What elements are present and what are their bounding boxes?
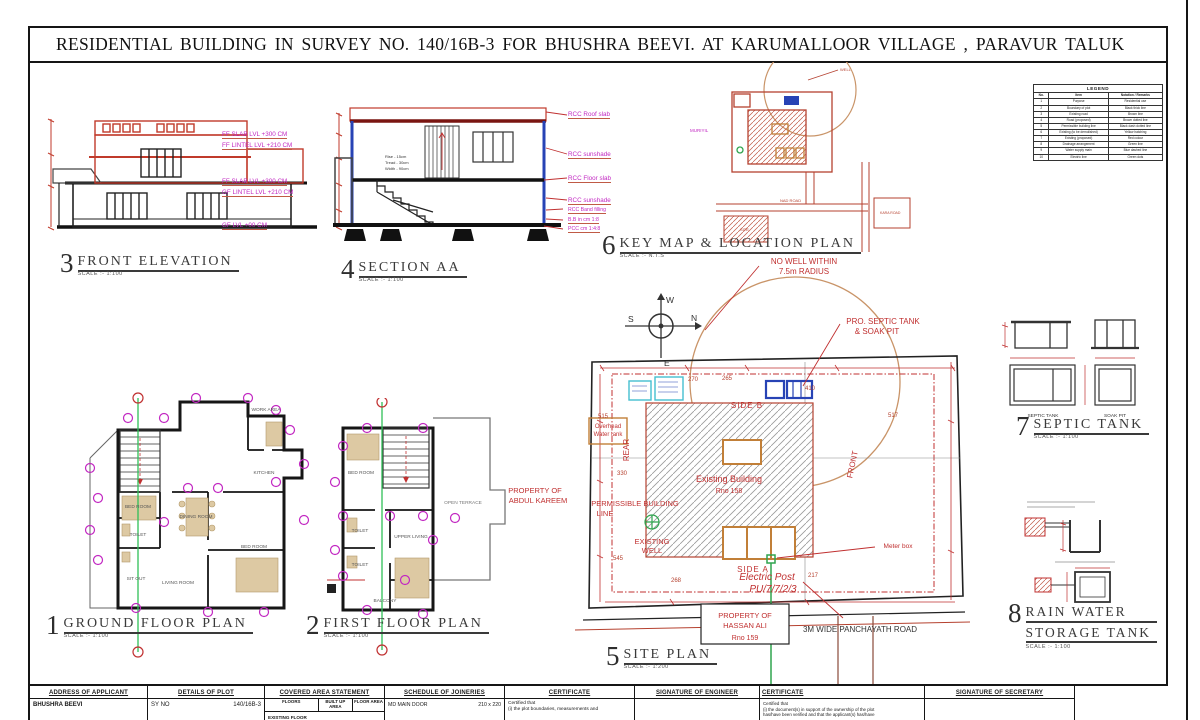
svg-text:WORK AREA: WORK AREA: [251, 407, 281, 413]
well-symbol: [645, 515, 659, 529]
parapet-vents: [103, 124, 194, 132]
title-block-plot: DETAILS OF PLOT SY NO 140/16B-3: [148, 686, 265, 720]
title-block-certificate-2: CERTIFICATE Certified that (i) the docum…: [760, 686, 925, 720]
rain-water-drawing: [1015, 490, 1180, 605]
legend-rows: 1PurposeResidential use2Boundary of plot…: [1034, 99, 1163, 160]
ground-floor-title: GROUND FLOOR PLAN: [64, 614, 253, 634]
legend-row: 10Electric lineGreen dots: [1034, 154, 1163, 160]
site-plan-drawing: NO WELL WITHIN 7.5m RADIUS PRO. SEPTIC T…: [505, 250, 983, 690]
overhead-tank-label2: Water tank: [594, 432, 624, 438]
legend-cell: Electric line: [1049, 154, 1108, 160]
key-map-drawing: WELL NAD ROAD SITE KARA ROAD MURIYIL: [688, 62, 913, 254]
title-block-certificate-1: CERTIFICATE Certified that (i) the plot …: [505, 686, 635, 720]
ground-floor-label: 1 GROUND FLOOR PLAN SCALE :- 1:100: [46, 614, 253, 639]
svg-text:517: 517: [888, 413, 899, 419]
section-leader-lines: [544, 112, 567, 229]
side-b-label: SIDE B: [731, 401, 763, 410]
front-elevation-label: 3 FRONT ELEVATION SCALE :- 1:100: [60, 252, 239, 277]
section-callout: RCC Roof slab: [568, 111, 610, 119]
svg-text:Tread - 30cm: Tread - 30cm: [385, 160, 409, 165]
joinery-label: MD MAIN DOOR: [388, 702, 427, 708]
electric-post-label: Electric Post: [739, 572, 796, 583]
title-block-secretary-sign: SIGNATURE OF SECRETARY: [925, 686, 1075, 720]
front-label: FRONT: [845, 450, 860, 479]
front-elevation-drawing: [45, 105, 345, 245]
svg-text:Rise - 15cm: Rise - 15cm: [385, 154, 407, 159]
svg-text:DINING ROOM: DINING ROOM: [179, 514, 212, 520]
existing-well-label2: WELL: [642, 546, 662, 555]
section-callout: RCC sunshade: [568, 197, 611, 205]
rain-water-scale: SCALE :- 1:100: [1026, 643, 1158, 650]
note-boxes: [629, 377, 683, 400]
site-plan-title: SITE PLAN: [624, 645, 718, 665]
svg-text:KITCHEN: KITCHEN: [253, 470, 275, 476]
existing-well-label: EXISTING: [634, 537, 669, 546]
no-well-label: NO WELL WITHIN: [771, 257, 838, 266]
svg-text:BED ROOM: BED ROOM: [125, 504, 151, 510]
title-block-applicant: ADDRESS OF APPLICANT BHUSHRA BEEVI: [30, 686, 148, 720]
legend-body: LEGEND No. Item Notation / Remarks: [1034, 85, 1163, 99]
section-aa-title: SECTION AA: [359, 258, 467, 278]
svg-text:SIT OUT: SIT OUT: [127, 576, 146, 582]
svg-text:217: 217: [808, 573, 819, 579]
septic-sections: [1011, 320, 1139, 348]
level-label: GF LINTEL LVL +210 CM: [222, 189, 293, 197]
section-aa-drawing: Rise - 15cm Tread - 30cm Width - 90cm: [333, 100, 591, 255]
legend-title: LEGEND: [1034, 85, 1163, 93]
svg-text:UPPER LIVING: UPPER LIVING: [394, 534, 428, 540]
property-box-label1: PROPERTY OF: [718, 611, 772, 620]
permissible-label2: LINE: [597, 509, 614, 518]
key-map-well-label: WELL: [840, 67, 852, 72]
rain-water-title-2: STORAGE TANK: [1026, 623, 1158, 644]
drawing-sheet: RESIDENTIAL BUILDING IN SURVEY NO. 140/1…: [0, 0, 1200, 720]
septic-label: PRO. SEPTIC TANK: [846, 317, 920, 326]
legend-cell: 10: [1034, 154, 1049, 160]
svg-text:TOILET: TOILET: [352, 528, 369, 534]
section-callout: PCC cm 1:4:8: [568, 226, 600, 233]
rw-plan: [1035, 568, 1110, 602]
joinery-size: 210 x 220: [478, 702, 501, 708]
title-block-empty: [1075, 686, 1168, 720]
svg-text:BED ROOM: BED ROOM: [241, 544, 267, 550]
septic-dims: [1002, 322, 1135, 405]
section-base-footings: [333, 225, 561, 241]
rw-section: [1025, 502, 1115, 562]
svg-text:OPEN TERRACE: OPEN TERRACE: [444, 500, 482, 506]
front-elevation-title: FRONT ELEVATION: [78, 252, 239, 272]
section-roof: [350, 108, 546, 121]
rear-label: REAR: [622, 439, 631, 461]
svg-text:TOILET: TOILET: [130, 532, 147, 538]
svg-text:268: 268: [671, 578, 682, 584]
section-callout: B.B in cm 1:8: [568, 217, 599, 224]
section-left-annex: [335, 158, 352, 225]
level-label: FF SLAB LVL +300 CM: [222, 131, 287, 139]
section-columns: [352, 121, 544, 225]
svg-text:330: 330: [617, 471, 628, 477]
svg-text:545: 545: [613, 556, 624, 562]
section-callout: RCC Band filling: [568, 207, 606, 214]
section-callout: RCC Floor slab: [568, 175, 611, 183]
section-window: [473, 132, 513, 162]
section-stair-note: Rise - 15cm Tread - 30cm Width - 90cm: [385, 154, 409, 171]
covered-area-row: EXISTING FLOOR: [265, 712, 384, 720]
first-floor-label: 2 FIRST FLOOR PLAN SCALE :- 1:100: [306, 614, 489, 639]
svg-text:265: 265: [722, 376, 733, 382]
permissible-label: PERMISSIBLE BUILDING: [591, 499, 679, 508]
svg-text:BED ROOM: BED ROOM: [348, 470, 374, 476]
svg-text:Width - 90cm: Width - 90cm: [385, 166, 409, 171]
electric-post-no: PU/7/7/2/3: [749, 584, 797, 595]
property-box-label2: HASSAN ALI: [723, 621, 767, 630]
sheet-title: RESIDENTIAL BUILDING IN SURVEY NO. 140/1…: [30, 34, 1124, 55]
key-map-kara-road-label: KARA ROAD: [880, 211, 901, 215]
section-upper-stair: [425, 126, 459, 178]
key-map-road-label: NAD ROAD: [780, 198, 801, 203]
svg-text:BALCONY: BALCONY: [374, 598, 398, 604]
ff-terrace: [433, 418, 505, 580]
overhead-tank-label: Overhead: [595, 424, 621, 430]
plot-sy-value: 140/16B-3: [233, 702, 261, 708]
plot-sy-label: SY NO: [151, 702, 170, 708]
title-block: ADDRESS OF APPLICANT BHUSHRA BEEVI DETAI…: [30, 684, 1168, 720]
existing-building-no: Rno 158: [716, 488, 743, 495]
septic-tank-label: 7 SEPTIC TANK SCALE :- 1:100: [1016, 415, 1149, 440]
title-band: RESIDENTIAL BUILDING IN SURVEY NO. 140/1…: [30, 28, 1166, 63]
section-aa-label: 4 SECTION AA SCALE :- 1:100: [341, 258, 467, 283]
title-block-covered-area: COVERED AREA STATEMENT FLOORS BUILT UP A…: [265, 686, 385, 720]
rain-water-label: 8 RAIN WATER STORAGE TANK SCALE :- 1:100: [1008, 602, 1157, 650]
legend-cell: Green dots: [1108, 154, 1162, 160]
svg-text:515: 515: [598, 414, 609, 420]
no-well-label2: 7.5m RADIUS: [779, 267, 829, 276]
site-plan-label: 5 SITE PLAN SCALE :- 1:200: [606, 645, 717, 670]
property-box-label3: Rno 159: [732, 635, 759, 642]
svg-text:TOILET: TOILET: [352, 562, 369, 568]
first-floor-title: FIRST FLOOR PLAN: [324, 614, 489, 634]
title-block-joineries: SCHEDULE OF JOINERIES MD MAIN DOOR 210 x…: [385, 686, 505, 720]
section-lower-stair: [377, 180, 433, 225]
svg-text:270: 270: [688, 377, 699, 383]
level-label: FF LINTEL LVL +210 CM: [222, 142, 292, 150]
septic-tank-title: SEPTIC TANK: [1034, 415, 1150, 435]
gf-porch: [90, 430, 118, 608]
svg-text:410: 410: [805, 386, 816, 392]
key-map-site-label: SITE: [740, 227, 749, 232]
key-map-plot: [732, 92, 832, 172]
level-label: FF SLAB LVL +300 CM: [222, 178, 287, 186]
section-callout: RCC sunshade: [568, 151, 611, 159]
svg-text:LIVING ROOM: LIVING ROOM: [162, 580, 194, 586]
ff-duct: [327, 584, 336, 593]
meter-box-label: Meter box: [884, 543, 914, 550]
key-map-muriyil-label: MURIYIL: [690, 128, 709, 133]
rain-water-title-1: RAIN WATER: [1026, 602, 1158, 623]
legend-table: LEGEND No. Item Notation / Remarks 1Purp…: [1033, 84, 1163, 161]
title-block-engineer-sign: SIGNATURE OF ENGINEER: [635, 686, 760, 720]
sheet-right-margin-line: [1186, 0, 1188, 720]
septic-label2: & SOAK PIT: [855, 327, 900, 336]
existing-building-label: Existing Building: [696, 474, 762, 484]
applicant-name: BHUSHRA BEEVI: [30, 699, 147, 711]
level-label: GF LVL +00 CM: [222, 222, 267, 230]
septic-plans: [1010, 365, 1135, 405]
road-label: 3M WIDE PANCHAYATH ROAD: [803, 625, 917, 634]
